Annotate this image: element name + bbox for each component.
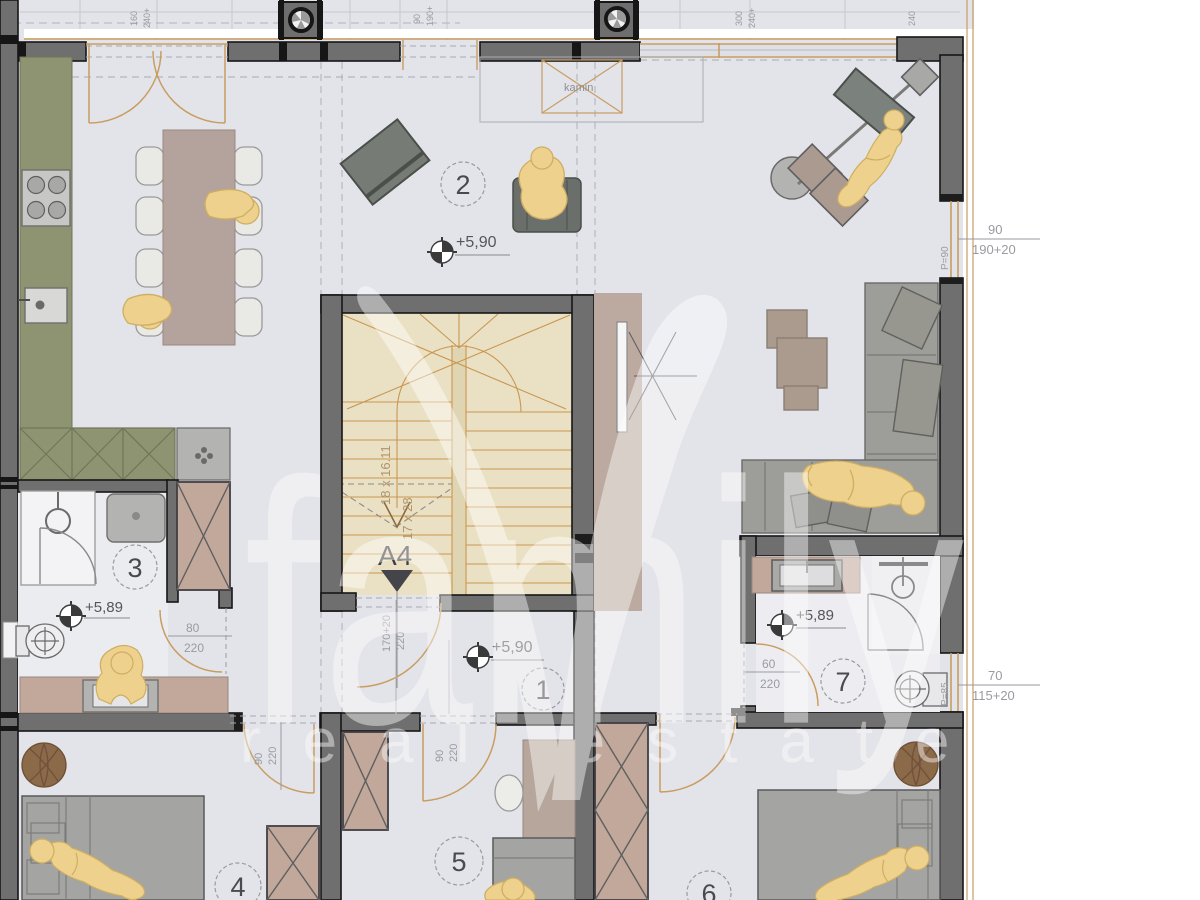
svg-text:240: 240 — [907, 11, 917, 26]
svg-text:3: 3 — [127, 553, 142, 583]
svg-text:115+20: 115+20 — [972, 688, 1015, 703]
svg-text:+5,90: +5,90 — [456, 234, 497, 251]
svg-text:P=90: P=90 — [940, 246, 951, 270]
svg-text:kamin: kamin — [564, 82, 593, 94]
svg-text:90: 90 — [412, 14, 422, 24]
svg-text:190+20: 190+20 — [972, 242, 1016, 257]
svg-text:300: 300 — [734, 11, 744, 26]
svg-text:4: 4 — [230, 872, 245, 900]
svg-text:160: 160 — [129, 11, 139, 26]
svg-text:+5,89: +5,89 — [85, 599, 123, 616]
svg-text:70: 70 — [988, 668, 1002, 683]
svg-text:90: 90 — [988, 222, 1002, 237]
svg-text:240+: 240+ — [142, 8, 152, 28]
svg-text:6: 6 — [701, 879, 716, 900]
svg-text:190+: 190+ — [425, 6, 435, 26]
svg-text:220: 220 — [184, 641, 204, 655]
svg-text:5: 5 — [451, 847, 466, 877]
svg-text:real estate: real estate — [240, 707, 992, 776]
svg-text:2: 2 — [455, 170, 470, 200]
svg-text:240+: 240+ — [747, 8, 757, 28]
svg-text:80: 80 — [186, 621, 200, 635]
